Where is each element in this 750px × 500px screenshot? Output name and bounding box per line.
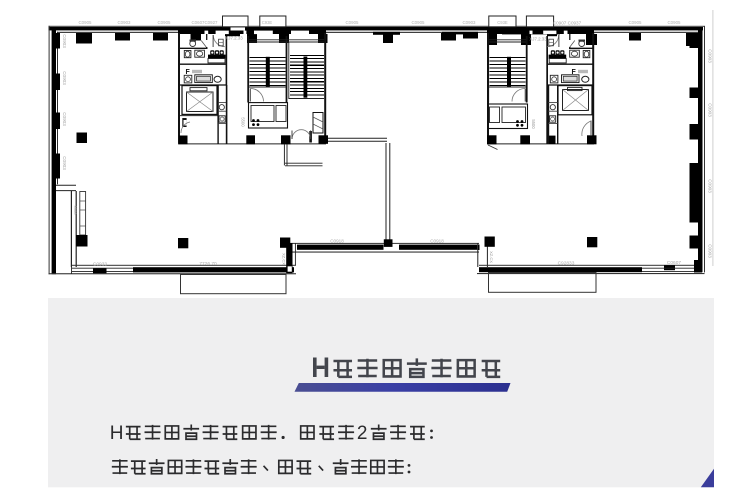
svg-text:C0903: C0903 [708,244,713,258]
svg-text:C0905: C0905 [346,20,359,25]
svg-text:C0903: C0903 [62,34,67,48]
svg-text:C0903: C0903 [708,103,713,117]
svg-text:C0903: C0903 [118,20,131,25]
svg-text:C0918: C0918 [330,238,344,243]
svg-text:C0905: C0905 [412,20,425,25]
svg-text:C92833: C92833 [558,261,575,267]
svg-text:C0903: C0903 [62,112,67,126]
svg-text:C0918: C0918 [430,238,444,243]
svg-text:C93E: C93E [497,20,508,25]
svg-text:5500: 5500 [241,117,246,127]
svg-text:C0903: C0903 [62,71,67,85]
svg-text:XJ7.2.33: XJ7.2.33 [225,36,243,41]
svg-text:C0905: C0905 [158,20,171,25]
svg-text:C0933: C0933 [93,262,107,268]
svg-text:C0905: C0905 [629,20,642,25]
svg-text:C0903: C0903 [708,179,713,193]
svg-text:C93E: C93E [262,20,273,25]
svg-text:3300: 3300 [73,206,78,216]
svg-text:H: H [110,423,124,444]
svg-text:C0903: C0903 [708,49,713,63]
svg-text:2: 2 [357,423,368,444]
svg-text:C0903: C0903 [463,20,476,25]
svg-text:XZ.CX: XZ.CX [281,253,286,265]
svg-text:C0907 C0937: C0907 C0937 [553,21,582,26]
svg-text:C0903: C0903 [62,156,67,170]
svg-text:C0927: C0927 [205,20,218,25]
svg-text:XJ7.2.33: XJ7.2.33 [529,37,547,42]
svg-text:C0607: C0607 [667,260,681,266]
svg-text:XZ.CX: XZ.CX [489,251,494,263]
svg-text:7726.70: 7726.70 [199,261,217,267]
svg-text:C0905: C0905 [668,20,681,25]
svg-text:C0607: C0607 [192,20,205,25]
svg-text:5500: 5500 [531,119,536,129]
svg-text:C0905: C0905 [79,20,92,25]
